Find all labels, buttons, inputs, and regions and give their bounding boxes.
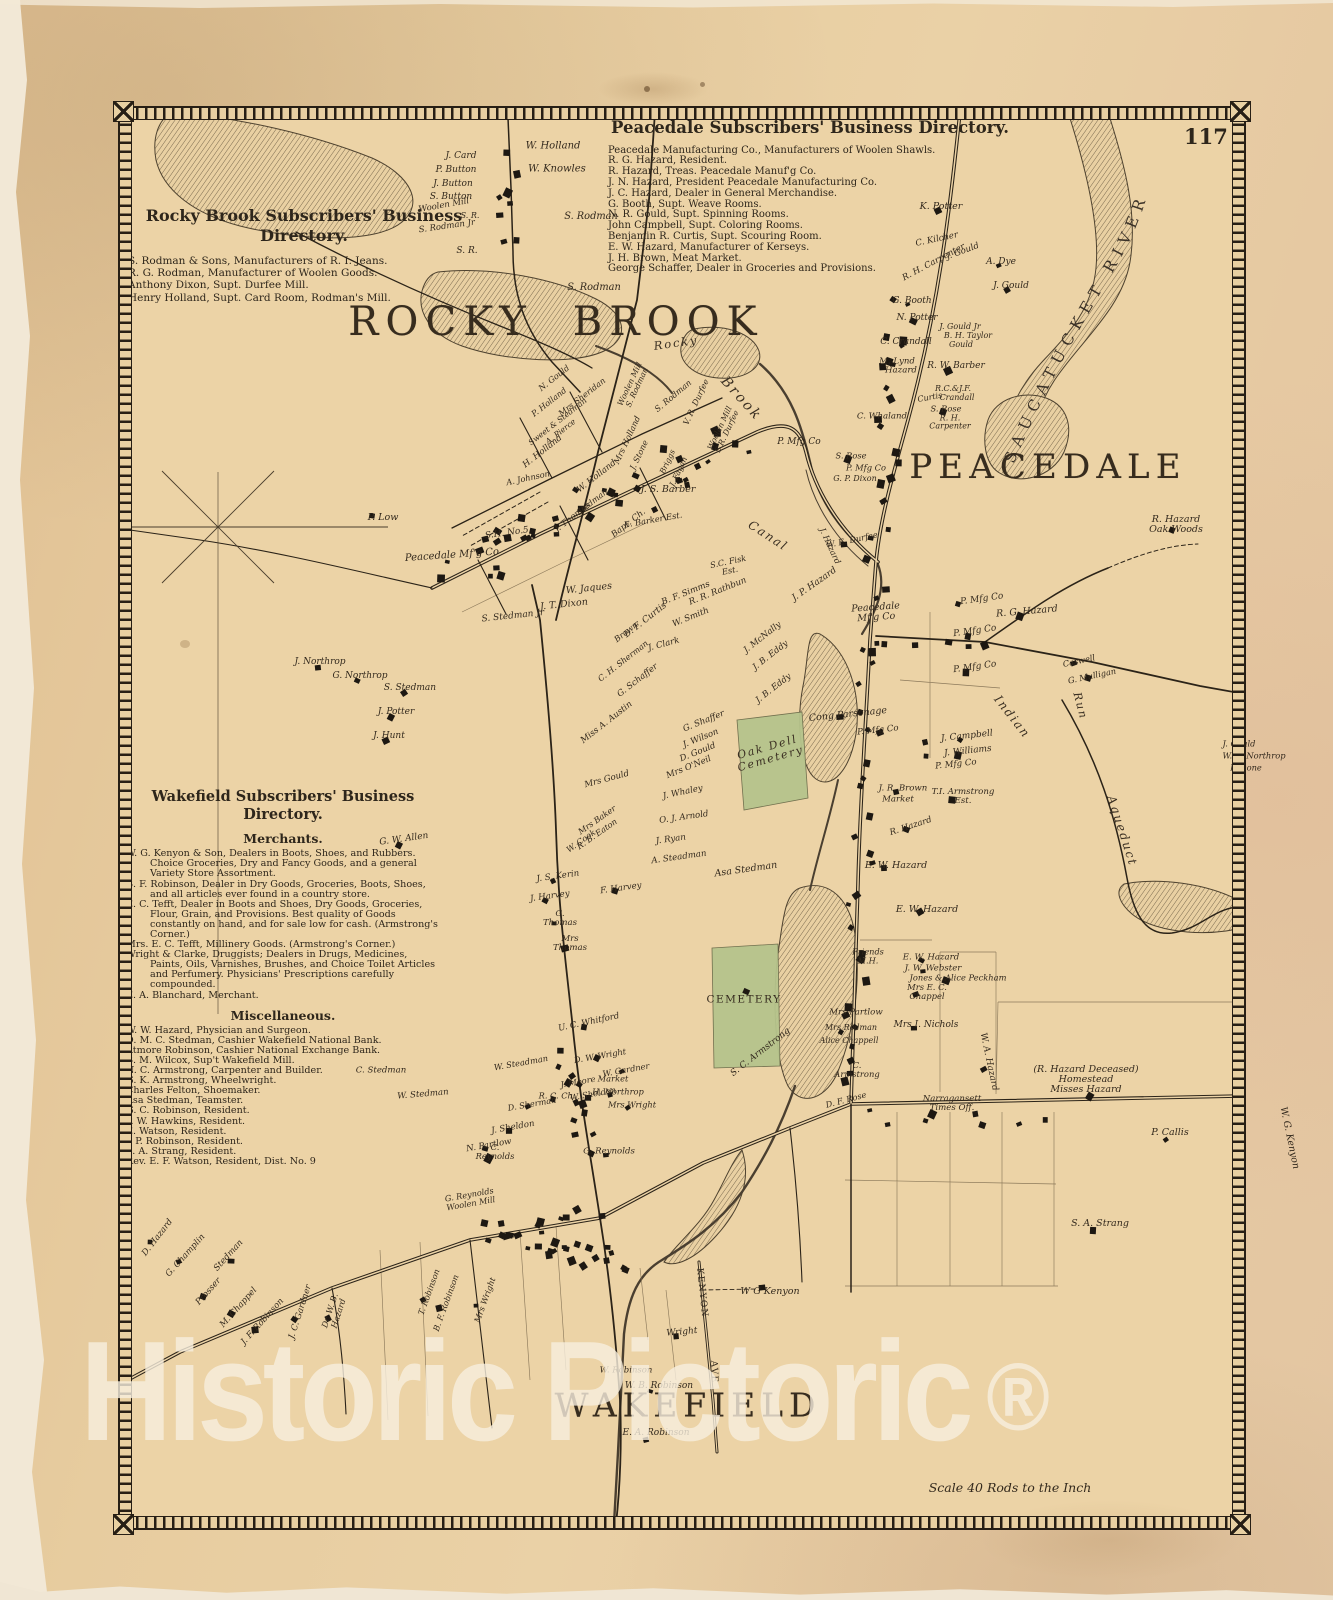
peacedale-directory-entries: Peacedale Manufacturing Co., Manufacture… <box>608 146 1012 276</box>
scale-note: Scale 40 Rods to the Inch <box>880 1480 1140 1495</box>
directory-section-heading: Merchants. <box>126 831 440 846</box>
rocky-brook-directory-title: Rocky Brook Subscribers' Business Direct… <box>128 206 480 246</box>
directory-entry: E. W. Hazard, Manufacturer of Kerseys. <box>608 243 1012 254</box>
atlas-page: SAUCATUCKET RIVER ROCKY BROOKPEACEDALEWA… <box>0 0 1333 1600</box>
page-number: 117 <box>1184 124 1228 149</box>
directory-entry: George Schaffer, Dealer in Groceries and… <box>608 264 1012 275</box>
directory-entry: J. C. Hazard, Dealer in General Merchand… <box>608 189 1012 200</box>
directory-entry: B. F. Robinson, Dealer in Dry Goods, Gro… <box>126 880 440 900</box>
directory-entry: R. G. Rodman, Manufacturer of Woolen Goo… <box>128 267 480 279</box>
wakefield-directory-title: Wakefield Subscribers' Business Director… <box>126 788 440 824</box>
river-name: SAUCATUCKET RIVER <box>1001 190 1152 465</box>
directory-entry: Rev. E. F. Watson, Resident, Dist. No. 9 <box>126 1157 440 1167</box>
peacedale-directory-title: Peacedale Subscribers' Business Director… <box>608 118 1012 139</box>
directory-entry: Anthony Dixon, Supt. Durfee Mill. <box>128 279 480 291</box>
directory-entry: G. C. Robinson, Resident. <box>126 1106 440 1116</box>
peacedale-directory: Peacedale Subscribers' Business Director… <box>608 118 1012 275</box>
directory-section-heading: Miscellaneous. <box>126 1008 440 1023</box>
wakefield-directory: Wakefield Subscribers' Business Director… <box>126 788 440 1167</box>
directory-entry: W. G. Kenyon & Son, Dealers in Boots, Sh… <box>126 849 440 879</box>
wakefield-directory-sections: Merchants.W. G. Kenyon & Son, Dealers in… <box>126 831 440 1167</box>
directory-entry: E. C. Tefft, Dealer in Boots and Shoes, … <box>126 900 440 940</box>
directory-entry: E. A. Blanchard, Merchant. <box>126 991 440 1001</box>
rocky-brook-directory: Rocky Brook Subscribers' Business Direct… <box>128 206 480 304</box>
directory-entry: Henry Holland, Supt. Card Room, Rodman's… <box>128 292 480 304</box>
directory-entry: Wright & Clarke, Druggists; Dealers in D… <box>126 950 440 990</box>
directory-entry: S. Rodman & Sons, Manufacturers of R. I.… <box>128 255 480 267</box>
rocky-brook-directory-entries: S. Rodman & Sons, Manufacturers of R. I.… <box>128 255 480 304</box>
